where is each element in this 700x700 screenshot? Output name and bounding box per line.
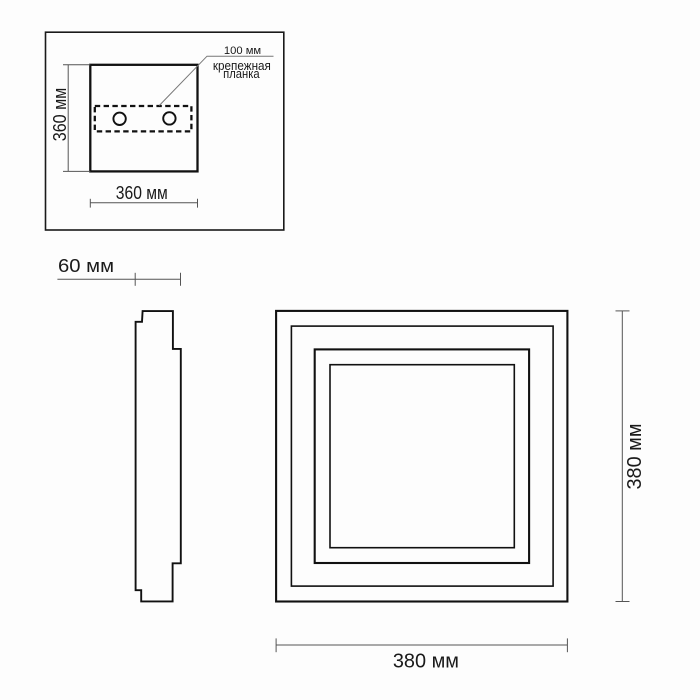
svg-text:100 мм: 100 мм xyxy=(224,45,261,57)
svg-text:360 мм: 360 мм xyxy=(50,88,70,142)
svg-text:380 мм: 380 мм xyxy=(623,424,646,490)
svg-text:360 мм: 360 мм xyxy=(116,183,168,203)
svg-text:60 мм: 60 мм xyxy=(58,256,114,276)
svg-text:380 мм: 380 мм xyxy=(393,651,459,673)
svg-text:планка: планка xyxy=(223,67,260,81)
